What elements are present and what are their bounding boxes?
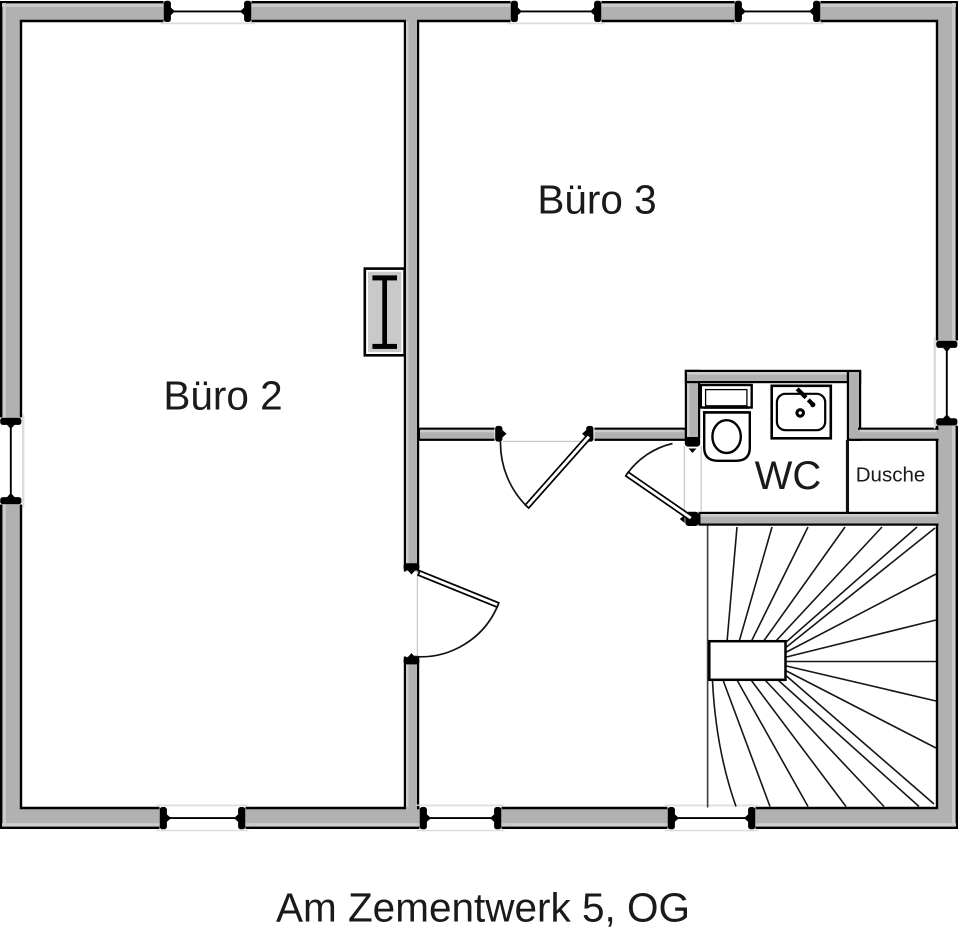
svg-text:Büro 3: Büro 3	[537, 177, 656, 223]
svg-text:WC: WC	[755, 454, 822, 498]
svg-text:Am Zementwerk 5, OG: Am Zementwerk 5, OG	[276, 885, 690, 931]
svg-text:Dusche: Dusche	[856, 464, 926, 487]
svg-text:Büro 2: Büro 2	[163, 373, 282, 419]
